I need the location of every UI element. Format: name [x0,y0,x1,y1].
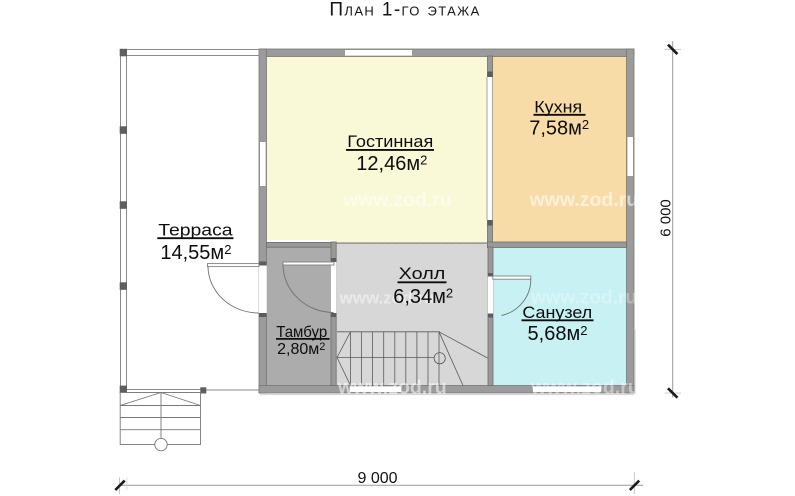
svg-text:12,46м2: 12,46м2 [356,153,427,175]
svg-text:2,80м2: 2,80м2 [277,341,325,358]
svg-text:www.zod.ru: www.zod.ru [529,189,639,211]
svg-text:Гостинная: Гостинная [347,132,433,151]
svg-text:www.zod.ru: www.zod.ru [342,189,452,211]
svg-text:www.zod.ru: www.zod.ru [337,376,447,398]
svg-text:7,58м2: 7,58м2 [529,117,589,139]
svg-text:14,55м2: 14,55м2 [160,242,231,264]
svg-text:Санузел: Санузел [522,303,592,322]
svg-text:5,68м2: 5,68м2 [528,323,588,345]
svg-text:6,34м2: 6,34м2 [393,286,453,308]
svg-text:План 1-го этажа: План 1-го этажа [329,0,480,20]
svg-text:9 000: 9 000 [357,470,397,487]
svg-text:Терраса: Терраса [158,221,233,240]
svg-text:6 000: 6 000 [657,199,674,237]
svg-text:Кухня: Кухня [534,98,582,117]
svg-text:www.zod.ru: www.zod.ru [530,376,640,398]
svg-text:Холл: Холл [399,264,446,283]
